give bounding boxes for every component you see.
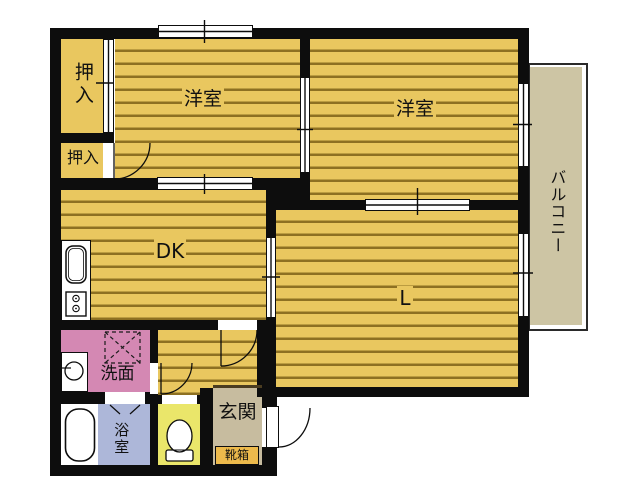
opening-closet-bottom-door — [103, 143, 114, 177]
wall-hall-living — [257, 330, 276, 387]
balcony-label: バルコニー — [547, 146, 565, 276]
washroom-label: 洗面 — [90, 365, 145, 385]
washbasin-cabinet — [61, 352, 88, 392]
bathtub-area — [61, 404, 98, 465]
kitchen-counter — [61, 240, 91, 322]
dining-kitchen-label: DK — [140, 240, 200, 263]
sliding-door-dk-living — [266, 237, 276, 318]
opening-toilet-door — [162, 395, 197, 404]
opening-dk-hall-door — [218, 320, 257, 330]
wall-closet-mid — [61, 133, 114, 143]
wall-bath-toilet — [150, 404, 158, 465]
sliding-door-closet-top — [103, 39, 114, 133]
opening-washroom-door — [150, 363, 158, 394]
entrance-label: 玄関 — [212, 402, 263, 424]
wall-entrance-right-lower — [262, 447, 277, 476]
bedroom-left-label: 洋室 — [168, 89, 238, 111]
bathroom-label: 浴室 — [112, 415, 129, 463]
wall-toilet-entrance — [200, 388, 213, 465]
wall-top — [50, 28, 529, 39]
wall-left — [50, 28, 61, 476]
window-bedroom-right — [518, 83, 529, 167]
closet-bottom-label: 押入 — [62, 149, 104, 167]
bedroom-right-label: 洋室 — [380, 99, 450, 121]
opening-bathroom-door — [105, 392, 145, 404]
living-label: L — [385, 287, 425, 310]
floor-plan: 押入 押入 洋室 洋室 DK L 洗面 浴室 玄関 靴箱 バルコニー — [0, 0, 640, 480]
sliding-door-bedrooms — [300, 77, 310, 173]
wall-bottom — [50, 465, 277, 476]
toilet-floor — [158, 404, 200, 465]
front-door-arc — [279, 408, 310, 447]
wall-living-bottom — [257, 387, 529, 397]
shoe-cabinet: 靴箱 — [215, 446, 259, 465]
sliding-door-bedroom1-dk — [157, 177, 253, 190]
window-living — [518, 233, 529, 317]
entrance-step-line — [213, 385, 262, 388]
window-bedroom-left-top — [158, 25, 253, 38]
front-door-leaf — [266, 406, 279, 448]
sliding-door-bedroom2-living — [365, 199, 470, 211]
closet-top-label: 押入 — [71, 57, 93, 113]
